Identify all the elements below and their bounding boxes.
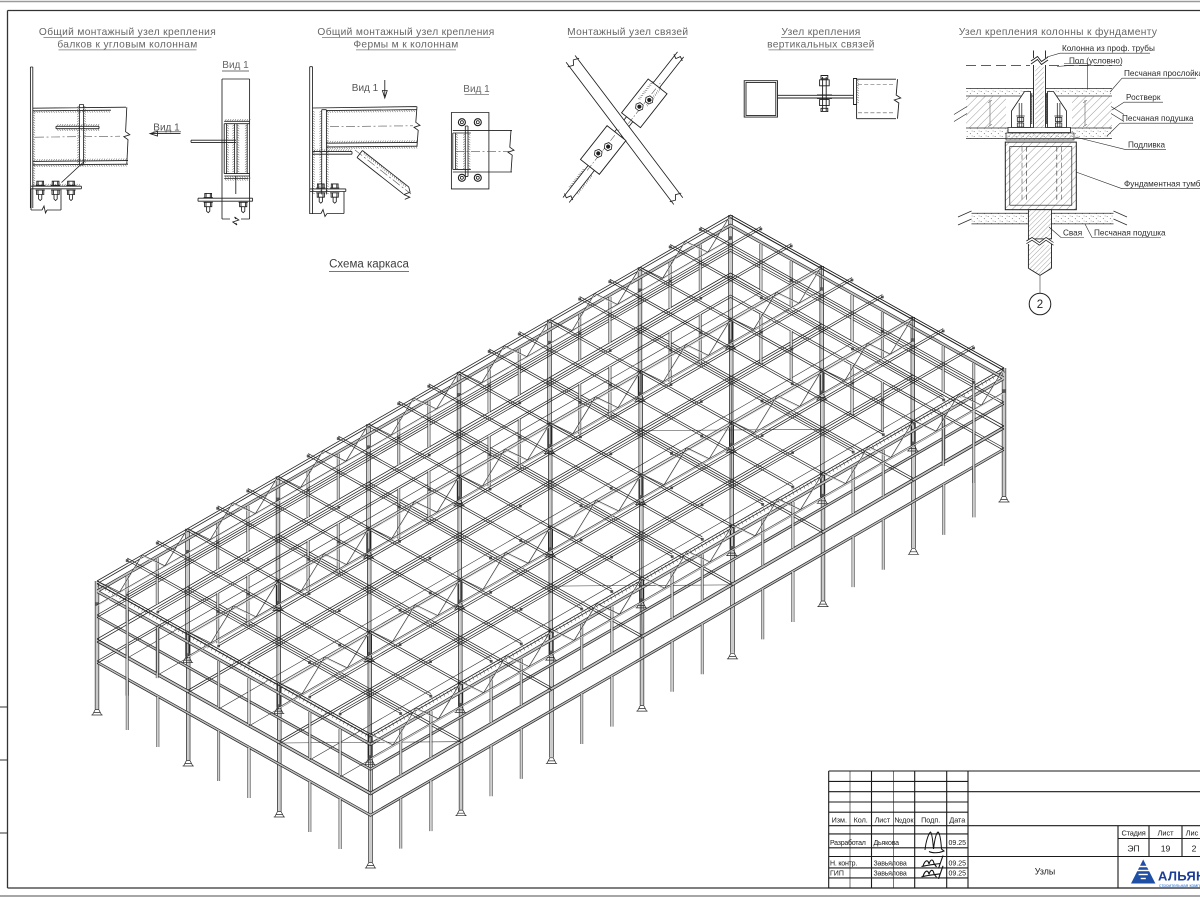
- svg-text:АЛЬЯНС: АЛЬЯНС: [1158, 869, 1200, 884]
- svg-text:Схема каркаса: Схема каркаса: [329, 259, 409, 271]
- svg-text:Завьялова: Завьялова: [874, 860, 907, 867]
- svg-text:вертикальных связей: вертикальных связей: [767, 40, 875, 51]
- svg-text:Подп.: Подп.: [921, 816, 940, 825]
- svg-text:Песчаная подушка: Песчаная подушка: [1094, 228, 1166, 237]
- svg-text:Завьялова: Завьялова: [874, 871, 907, 878]
- svg-text:Свая: Свая: [1063, 228, 1082, 237]
- svg-text:Вид 1: Вид 1: [463, 84, 490, 95]
- svg-text:Кол.: Кол.: [854, 816, 868, 825]
- svg-text:ЭП: ЭП: [1127, 843, 1139, 853]
- svg-text:Изм.: Изм.: [832, 816, 847, 825]
- svg-text:Узел крепления колонны к фунда: Узел крепления колонны к фундаменту: [959, 26, 1158, 38]
- svg-text:Фундаментная тумба: Фундаментная тумба: [1124, 180, 1200, 189]
- svg-text:09.25: 09.25: [949, 840, 967, 847]
- svg-text:№док: №док: [894, 816, 914, 825]
- svg-text:19: 19: [1161, 843, 1171, 853]
- svg-text:09.25: 09.25: [949, 860, 967, 867]
- svg-text:Колонна из проф. трубы: Колонна из проф. трубы: [1062, 44, 1155, 53]
- svg-text:Разработал: Разработал: [830, 839, 866, 847]
- svg-text:Стадия: Стадия: [1122, 828, 1146, 837]
- svg-text:Ростверк: Ростверк: [1126, 93, 1161, 102]
- svg-text:Лист: Лист: [875, 816, 891, 825]
- svg-text:Лист: Лист: [1157, 828, 1174, 837]
- svg-text:Песчаная прослойка: Песчаная прослойка: [1124, 69, 1200, 78]
- svg-text:Общий монтажный узел крепления: Общий монтажный узел крепления: [317, 26, 494, 38]
- svg-text:строительная компания: строительная компания: [1159, 883, 1200, 888]
- svg-text:09.25: 09.25: [949, 871, 967, 878]
- svg-text:балков к угловым колоннам: балков к угловым колоннам: [57, 39, 197, 51]
- svg-text:Дьякова: Дьякова: [874, 840, 900, 847]
- svg-text:Монтажный узел связей: Монтажный узел связей: [567, 27, 688, 38]
- svg-text:Узлы: Узлы: [1035, 867, 1055, 877]
- svg-text:ГИП: ГИП: [830, 871, 844, 878]
- svg-text:Лис: Лис: [1186, 828, 1199, 837]
- svg-text:Вид 1: Вид 1: [352, 83, 379, 94]
- svg-text:Пол (условно): Пол (условно): [1069, 57, 1123, 66]
- svg-text:Узел крепления: Узел крепления: [781, 27, 860, 38]
- svg-text:Подливка: Подливка: [1128, 141, 1165, 150]
- svg-text:Вид 1: Вид 1: [222, 60, 249, 71]
- svg-text:Общий монтажный узел крепления: Общий монтажный узел крепления: [39, 26, 216, 38]
- svg-text:2: 2: [1037, 299, 1043, 311]
- svg-text:2: 2: [1192, 843, 1197, 853]
- svg-text:Дата: Дата: [949, 816, 965, 825]
- svg-text:Фермы м к колоннам: Фермы м к колоннам: [353, 40, 458, 51]
- svg-text:Н. контр.: Н. контр.: [830, 860, 857, 867]
- svg-text:Песчаная подушка: Песчаная подушка: [1122, 114, 1194, 123]
